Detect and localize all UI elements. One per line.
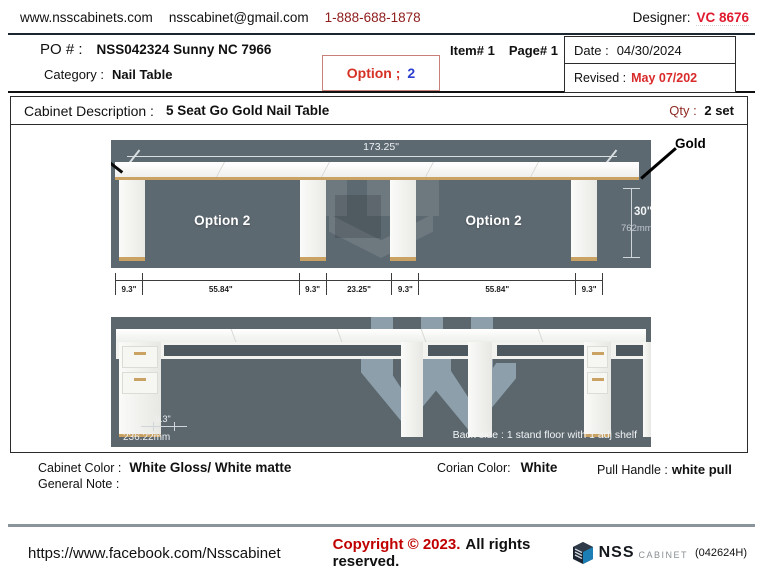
dimension-segment: 23.25": [326, 273, 392, 295]
drawer-pull: [592, 352, 604, 355]
shelf-opening: [428, 345, 473, 356]
tabletop-seam: [530, 162, 539, 177]
date-label: Date :: [574, 43, 609, 58]
height-dimension-cap: [623, 257, 640, 258]
dimension-segment: 9.3": [575, 273, 603, 295]
gold-edge-strip: [115, 177, 639, 180]
drawer-front: [587, 346, 608, 368]
description-label: Cabinet Description :: [24, 103, 154, 119]
footer: https://www.facebook.com/Nsscabinet Copy…: [28, 536, 747, 570]
option-value: 2: [407, 65, 415, 81]
back-column: [468, 342, 492, 437]
corian-color-label: Corian Color:: [437, 461, 511, 475]
phone-number: 1-888-688-1878: [325, 10, 421, 25]
back-column: [401, 342, 423, 437]
category-value: Nail Table: [112, 67, 172, 82]
revised-row: Revised : May 07/202: [565, 64, 735, 91]
logo-text: NSS: [599, 544, 635, 562]
dimension-segment: 55.84": [418, 273, 575, 295]
back-edge: [643, 342, 651, 437]
depth-mm: 236.22mm: [123, 432, 170, 443]
logo-subtext: CABINET: [639, 550, 689, 560]
height-inches: 30": [634, 206, 651, 218]
general-note-line: General Note :: [38, 477, 119, 491]
tabletop-seam: [321, 162, 330, 177]
date-value: 04/30/2024: [617, 43, 682, 58]
table-pedestal: [119, 180, 145, 261]
drawer-front: [122, 372, 158, 394]
dimension-segment: 9.3": [115, 273, 142, 295]
po-value: NSS042324 Sunny NC 7966: [97, 42, 272, 57]
option-box: Option ; 2: [322, 55, 440, 91]
drawer-pull: [592, 378, 604, 381]
shelf-band: [116, 342, 646, 359]
depth-inches: 9.3": [155, 414, 171, 424]
tabletop-seam: [336, 329, 342, 342]
shelf-opening: [497, 345, 589, 356]
drawer-pull: [134, 378, 146, 381]
qty-value: 2 set: [704, 103, 734, 118]
pedestal-row: Option 2Option 2: [119, 180, 597, 261]
table-pedestal: [390, 180, 416, 261]
cabinet-color-value: White Gloss/ White matte: [129, 460, 291, 475]
tabletop-seam: [538, 329, 544, 342]
knee-opening: Option 2: [145, 180, 300, 261]
category-label: Category :: [44, 67, 104, 82]
front-view-render: 173.25" Option 2Option 2 30" 762mm: [111, 140, 651, 268]
category-line: Category :Nail Table: [44, 67, 172, 82]
dimension-segment: 9.3": [391, 273, 418, 295]
back-view-render: 9.3" 236.22mm Back side : 1 stand floor …: [111, 317, 651, 447]
tabletop: [115, 162, 639, 177]
po-label: PO # :: [40, 41, 83, 58]
revised-value: May 07/202: [631, 71, 697, 85]
company-logo: NSS CABINET (042624H): [572, 541, 747, 565]
width-dimension-row: 9.3"55.84"9.3"23.25"9.3"55.84"9.3": [115, 273, 603, 295]
table-pedestal: [571, 180, 597, 261]
cabinet-color-label: Cabinet Color :: [38, 461, 121, 475]
corian-color-line: Corian Color:White: [437, 460, 557, 475]
revised-label: Revised :: [574, 71, 626, 85]
pull-handle-label: Pull Handle :: [597, 463, 668, 477]
knee-opening: Option 2: [416, 180, 571, 261]
order-info-section: PO # :NSS042324 Sunny NC 7966 Category :…: [8, 36, 755, 93]
option-2-label: Option 2: [194, 213, 250, 228]
drawer-front: [587, 372, 608, 394]
back-side-note: Back side : 1 stand floor with 1 adj she…: [453, 429, 637, 441]
date-box: Date : 04/30/2024 Revised : May 07/202: [564, 36, 736, 93]
cabinet-description-row: Cabinet Description : 5 Seat Go Gold Nai…: [11, 97, 747, 125]
shelf-opening: [164, 345, 404, 356]
depth-dimension-line: [141, 426, 187, 427]
dimension-line: [127, 156, 617, 157]
pull-handle-line: Pull Handle :white pull: [597, 462, 732, 477]
overall-width-dimension: 173.25": [111, 141, 651, 153]
facebook-link[interactable]: https://www.facebook.com/Nsscabinet: [28, 545, 281, 562]
description-value: 5 Seat Go Gold Nail Table: [166, 103, 329, 118]
dimension-segment: 9.3": [299, 273, 326, 295]
email-link[interactable]: nsscabinet@gmail.com: [169, 10, 309, 25]
center-gap: [326, 180, 391, 261]
po-line: PO # :NSS042324 Sunny NC 7966: [40, 41, 271, 58]
option-2-label: Option 2: [465, 213, 521, 228]
back-pedestal-right: [584, 342, 611, 437]
dimension-segment: 55.84": [142, 273, 299, 295]
option-label: Option ;: [347, 65, 401, 81]
drawer-pull: [134, 352, 146, 355]
revision-code: (042624H): [695, 547, 747, 559]
tabletop-seam: [230, 329, 236, 342]
footer-divider: [8, 524, 755, 527]
tabletop-seam: [425, 162, 434, 177]
spec-sheet-page: www.nsscabinets.com nsscabinet@gmail.com…: [0, 0, 763, 570]
page-number: Page# 1: [509, 43, 558, 58]
header-divider: [8, 33, 755, 35]
tabletop-back: [116, 329, 646, 342]
general-note-label: General Note :: [38, 477, 119, 491]
height-dimension-cap: [623, 188, 640, 189]
item-number: Item# 1: [450, 43, 495, 58]
drawer-front: [122, 346, 158, 368]
item-page-line: Item# 1Page# 1: [450, 43, 558, 58]
designer-value: VC 8676: [696, 10, 749, 26]
drawing-panel: Cabinet Description : 5 Seat Go Gold Nai…: [10, 96, 748, 453]
nss-cube-icon: [572, 541, 594, 565]
pull-handle-value: white pull: [672, 462, 732, 477]
date-row: Date : 04/30/2024: [565, 37, 735, 64]
copyright-year: Copyright © 2023.: [333, 536, 461, 553]
copyright: Copyright © 2023.All rights reserved.: [333, 536, 572, 570]
tabletop-seam: [421, 329, 427, 342]
quantity: Qty : 2 set: [669, 103, 734, 118]
qty-label: Qty :: [669, 103, 696, 118]
designer-label: Designer:: [633, 10, 691, 25]
header: www.nsscabinets.com nsscabinet@gmail.com…: [20, 10, 749, 26]
tabletop-seam: [216, 162, 225, 177]
website-link[interactable]: www.nsscabinets.com: [20, 10, 153, 25]
height-mm: 762mm: [621, 223, 651, 234]
corian-color-value: White: [521, 460, 558, 475]
table-pedestal: [300, 180, 326, 261]
gold-callout-label: Gold: [675, 136, 706, 151]
cabinet-color-line: Cabinet Color :White Gloss/ White matte: [38, 460, 291, 475]
